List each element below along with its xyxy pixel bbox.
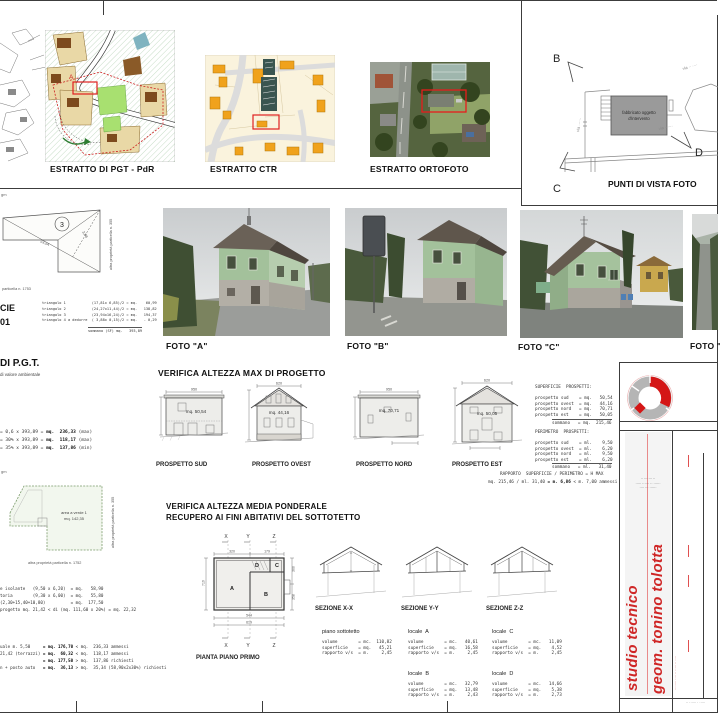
heading-fragment: 01	[0, 317, 10, 327]
frame-tick	[447, 701, 448, 712]
pgt-row-value: mq. 137,86	[46, 446, 76, 451]
adjacent-parcel-note: altra proprietà particella n. 355	[109, 219, 113, 270]
titleblock-frame	[619, 362, 717, 363]
text-fragment: gm	[1, 469, 7, 474]
area-value: mq. 50,05	[477, 411, 498, 416]
pgt-legend-fragment	[0, 25, 46, 165]
ground-line	[487, 591, 557, 597]
sketch-blocks	[6, 89, 27, 152]
titleblock-bottom-note: ·· ······ · ·····	[686, 701, 705, 705]
superficie-table: SUPERFICIE PROSPETTI: prospetto sud = mq…	[535, 385, 613, 419]
table-sottotetto: volume = mc. 110,82 superficie = mq. 45,…	[322, 640, 392, 657]
dark-building-band	[261, 59, 277, 111]
dim-left: 719	[202, 580, 206, 586]
axis-y-top: Y	[246, 534, 250, 540]
ground-line	[402, 591, 472, 597]
pgt-map-label: ESTRATTO DI PGT - PdR	[50, 164, 154, 174]
building-label-line2: d'intervento	[628, 116, 650, 121]
dim-top1: 320	[229, 550, 235, 554]
pgt-row-note: (max)	[79, 430, 93, 435]
red-tick	[688, 455, 689, 467]
verifica-media-title1: VERIFICA ALTEZZA MEDIA PONDERALE	[166, 502, 327, 511]
parcel-outline	[3, 210, 100, 272]
section-zz	[483, 535, 561, 601]
ratio-calc: mq. 215,46 / ml. 31,40	[488, 480, 548, 485]
section-xx	[312, 535, 390, 601]
trees-right	[308, 263, 330, 303]
summary-row: uale m. 5,50 = mq. 176,70 < mq. 236,33 a…	[0, 643, 129, 650]
pgt-row-calc: = 0,6 x 393,89 =	[0, 430, 43, 435]
area-value: mq. 50,54	[186, 409, 207, 414]
floor-plan-label: PIANTA PIANO PRIMO	[196, 655, 260, 661]
summary-row: n + posto auto = mq. 36,13 > mq. 35,34 (…	[0, 664, 166, 671]
marker-a: A	[69, 74, 74, 81]
annex	[301, 420, 313, 438]
photo-d	[692, 214, 718, 330]
parcel-note: particella n. 1753	[2, 287, 31, 291]
walls	[493, 551, 551, 573]
studio-logo	[622, 370, 678, 426]
tree	[387, 233, 405, 298]
photo-c	[520, 210, 683, 338]
parcel-number: 3	[60, 222, 64, 229]
dim-bottom1: 544	[246, 614, 252, 618]
photo-c-label: FOTO "C"	[518, 342, 560, 352]
viewpoint-sketch: fabbricato oggetto d'intervento B C D vi…	[535, 40, 718, 195]
perimetro-total: sommano = ml. 31,40	[552, 463, 612, 471]
pgt-map: A	[45, 30, 175, 162]
red-tick	[688, 575, 689, 587]
room-a: A	[230, 586, 234, 592]
photo-b-label: FOTO "B"	[347, 341, 389, 351]
pgt-row: = 35% x 393,89 = mq. 137,86 (min)	[0, 445, 92, 453]
red-tick	[688, 545, 689, 557]
green-area-outline	[10, 486, 102, 550]
perimetro-table: PERIMETRO PROSPETTI: prospetto sud = ml.…	[535, 430, 613, 464]
pgt-row: = 0,6 x 393,89 = mq. 236,33 (max)	[0, 429, 92, 437]
dim-diagonal: 23,94	[40, 239, 50, 247]
photo-d-label: FOTO "D"	[690, 341, 720, 351]
triangle-total: sommano (SF) mq. 393,89	[88, 327, 142, 335]
frame-line	[0, 0, 717, 1]
frame-line	[0, 712, 718, 713]
section-yy	[398, 535, 476, 601]
photo-b	[345, 208, 507, 336]
room-b: B	[264, 592, 268, 598]
titleblock-frame	[619, 698, 717, 699]
frame-line	[521, 205, 717, 206]
axis-x-top: X	[224, 534, 228, 540]
dim-arrows	[426, 557, 450, 572]
text-fragment: gm	[1, 192, 7, 197]
building-label-line1: fabbricato oggetto	[622, 110, 656, 115]
axis-z-bottom: Z	[272, 643, 275, 649]
titleblock-frame	[672, 430, 673, 712]
summary-rest: > mq. 35,34 (58,90x2x30%) richiesti	[73, 665, 166, 670]
table-title-sottotetto: piano sottotetto	[322, 629, 360, 635]
photo-a-label: FOTO "A"	[166, 341, 208, 351]
area-calcs: e isolante (9,50 x 6,20) = mq. 58,90 tor…	[0, 585, 136, 613]
drawing-sheet: gm	[0, 0, 720, 720]
viewpoint-d: D	[695, 147, 703, 159]
floor-plan: X Y Z A B C D 320 179 544 619 719 300 35…	[196, 528, 300, 650]
prospetto-est: 620 mq. 50,05	[450, 378, 524, 462]
summary-row: 21,42 (terrazzi) = mq. 60,32 < mq. 118,1…	[0, 650, 129, 657]
facade	[166, 398, 222, 435]
summary-value: = mq. 60,32	[43, 651, 73, 656]
titleblock-frame	[703, 453, 704, 698]
supports	[414, 571, 460, 595]
parcel-diagram: 3 23,94 3,88 altra proprietà particella …	[0, 200, 135, 305]
pgt-row-calc: = 30% x 393,89 =	[0, 438, 43, 443]
frame-tick	[76, 701, 77, 712]
summary-value: = mq. 176,70	[43, 644, 73, 649]
verifica-media-title2: RECUPERO AI FINI ABITATIVI DEL SOTTOTETT…	[166, 513, 360, 522]
ctr-map	[205, 55, 335, 162]
dim-width: 950	[191, 388, 197, 392]
titleblock-frame	[619, 430, 717, 431]
photo-a	[163, 208, 330, 336]
eave	[358, 395, 420, 398]
gable	[255, 390, 303, 406]
parcel-note: altra proprietà particella n. 1752	[28, 561, 81, 565]
dim-width: 950	[386, 388, 392, 392]
viewpoints-title: PUNTI DI VISTA FOTO	[608, 179, 697, 189]
pgt-row-value: mq. 118,17	[46, 438, 76, 443]
summary-value: = mq. 177,50	[43, 658, 73, 663]
prospetto-nord: 950 mq. 70,71	[352, 385, 426, 461]
heading-fragment: CIE	[0, 303, 15, 313]
prospetto-sud: 950 mq. 50,54	[158, 385, 230, 461]
prospetto-sud-label: PROSPETTO SUD	[156, 462, 207, 468]
section-xx-label: SEZIONE X-X	[315, 606, 353, 612]
pgt-row: = 30% x 393,89 = mq. 118,17 (max)	[0, 437, 92, 445]
table-locale-d: volume = mc. 14,66 superficie = mq. 5,38…	[492, 682, 562, 699]
orto-map-label: ESTRATTO ORTOFOTO	[370, 164, 469, 174]
ratio-value: = m. 6,86	[548, 480, 574, 485]
summary-value: = mq. 36,13	[43, 665, 73, 670]
eave	[164, 395, 224, 398]
titleblock-frame	[619, 362, 620, 712]
table-locale-c: volume = mc. 11,09 superficie = mq. 4,52…	[492, 640, 562, 657]
sketch-lines	[0, 29, 46, 161]
axis-y-bottom: Y	[246, 643, 250, 649]
axis-x-bottom: X	[224, 643, 228, 649]
frame-tick	[262, 701, 263, 712]
room-d: D	[255, 563, 259, 569]
viewpoint-c: C	[553, 183, 561, 195]
ratio-title: RAPPORTO SUPERFICIE / PERIMETRO = H MAX	[500, 472, 603, 478]
prospetto-est-label: PROSPETTO EST	[452, 462, 502, 468]
table-locale-a: volume = mc. 40,61 superficie = mq. 16,5…	[408, 640, 478, 657]
studio-address: ·· ······· ·· ····· ······ ·· ······ ···…	[627, 477, 669, 491]
red-tick	[688, 640, 689, 652]
table-title-locale-b: locale B	[408, 671, 429, 677]
orto-map	[370, 62, 490, 157]
table-title-locale-c: locale C	[492, 629, 513, 635]
trees-right	[668, 268, 683, 302]
summary-row: = mq. 177,50 > mq. 137,86 richiesti	[0, 657, 134, 664]
axis-z-top: Z	[272, 534, 275, 540]
viewpoint-b: B	[553, 53, 560, 65]
area-value: mq. 44,16	[269, 410, 290, 415]
bush	[163, 294, 179, 322]
dim-right1: 300	[292, 566, 296, 572]
dim-arrows	[328, 552, 374, 573]
ratio-note: < m. 7,00 ammessi	[573, 480, 617, 485]
titleblock-centerline	[647, 434, 648, 694]
logo-red-segment	[650, 382, 666, 406]
supports	[499, 571, 545, 595]
dim-bottom2: 619	[246, 621, 252, 625]
verde-label-line1: area a verde 1	[61, 510, 88, 515]
pgt-data-heading: DI P.G.T.	[0, 358, 39, 369]
bin	[628, 294, 633, 300]
summary-rest: < mq. 118,17 ammessi	[73, 651, 128, 656]
street-label-top: via ·· ····	[682, 62, 698, 71]
summary-rest: > mq. 137,86 richiesti	[73, 658, 134, 663]
table-title-locale-a: locale A	[408, 629, 429, 635]
green-area-diagram: area a verde 1 mq. 142,35 altra propriet…	[2, 478, 135, 570]
street-label-left: via ······	[575, 117, 582, 132]
walls	[408, 551, 466, 573]
dim-width: 620	[276, 382, 282, 386]
summary-lead	[0, 658, 43, 663]
summary-lead: 21,42 (terrazzi)	[0, 651, 43, 656]
section-zz-label: SEZIONE Z-Z	[486, 606, 523, 612]
summary-rest: < mq. 236,33 ammessi	[73, 644, 128, 649]
prospetto-ovest: 620 mq. 44,16	[243, 380, 315, 462]
car	[456, 99, 462, 103]
ground-line	[316, 591, 386, 597]
pgt-data-subheading: di valore ambientale	[0, 372, 40, 377]
gable	[460, 388, 514, 404]
room-c: C	[275, 563, 279, 569]
studio-name-line1: studio tecnico	[624, 591, 641, 691]
pgt-row-calc: = 35% x 393,89 =	[0, 446, 43, 451]
bin	[621, 294, 626, 300]
facade	[462, 404, 512, 442]
subject-roof	[428, 94, 454, 107]
frame-line	[521, 0, 522, 205]
section-yy-label: SEZIONE Y-Y	[401, 606, 439, 612]
dim-width: 620	[484, 379, 490, 383]
area-value: mq. 70,71	[379, 408, 400, 413]
dim-top2: 179	[264, 550, 270, 554]
table-locale-b: volume = mc. 32,79 superficie = mq. 13,4…	[408, 682, 478, 699]
outer-wall	[214, 558, 284, 610]
table-title-locale-d: locale D	[492, 671, 513, 677]
summary-lead: uale m. 5,50	[0, 644, 43, 649]
pgt-row-note: (min)	[79, 446, 93, 451]
frame-line	[103, 0, 104, 15]
prospetto-ovest-label: PROSPETTO OVEST	[252, 462, 311, 468]
verde-label-line2: mq. 142,35	[64, 516, 85, 521]
prospetto-nord-label: PROSPETTO NORD	[356, 462, 412, 468]
supports	[328, 571, 374, 595]
titleblock-side-note: ········ ···· ·· ····· ·· ····	[674, 580, 678, 690]
superficie-total: sommano = mq. 215,46	[552, 419, 612, 427]
studio-name-line2: geom. tonino tolotta	[649, 549, 666, 694]
adjacent-parcel-note: altra proprietà particella n. 355	[111, 497, 115, 548]
verifica-max-title: VERIFICA ALTEZZA MAX DI PROGETTO	[158, 368, 326, 378]
trees-left	[520, 240, 548, 310]
pgt-row-value: mq. 236,33	[46, 430, 76, 435]
ratio-line: mq. 215,46 / ml. 31,40 = m. 6,86 < m. 7,…	[488, 480, 617, 486]
pgt-row-note: (max)	[79, 438, 93, 443]
facade	[360, 398, 418, 437]
summary-lead: n + posto auto	[0, 665, 43, 670]
ctr-map-label: ESTRATTO CTR	[210, 164, 277, 174]
frame-line	[0, 188, 521, 189]
balcony	[284, 580, 290, 594]
triangle-table: triangolo 1 (17,81x 6,85)/2 = mq. 60,99 …	[42, 301, 157, 324]
dim-right2: 358	[292, 594, 296, 600]
